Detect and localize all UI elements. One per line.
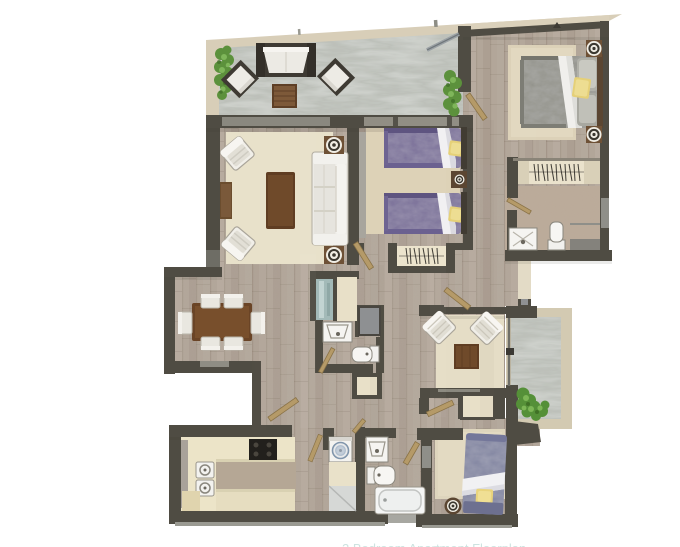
svg-text:2 Bedroom Apartment Floorplan: 2 Bedroom Apartment Floorplan	[342, 541, 526, 547]
